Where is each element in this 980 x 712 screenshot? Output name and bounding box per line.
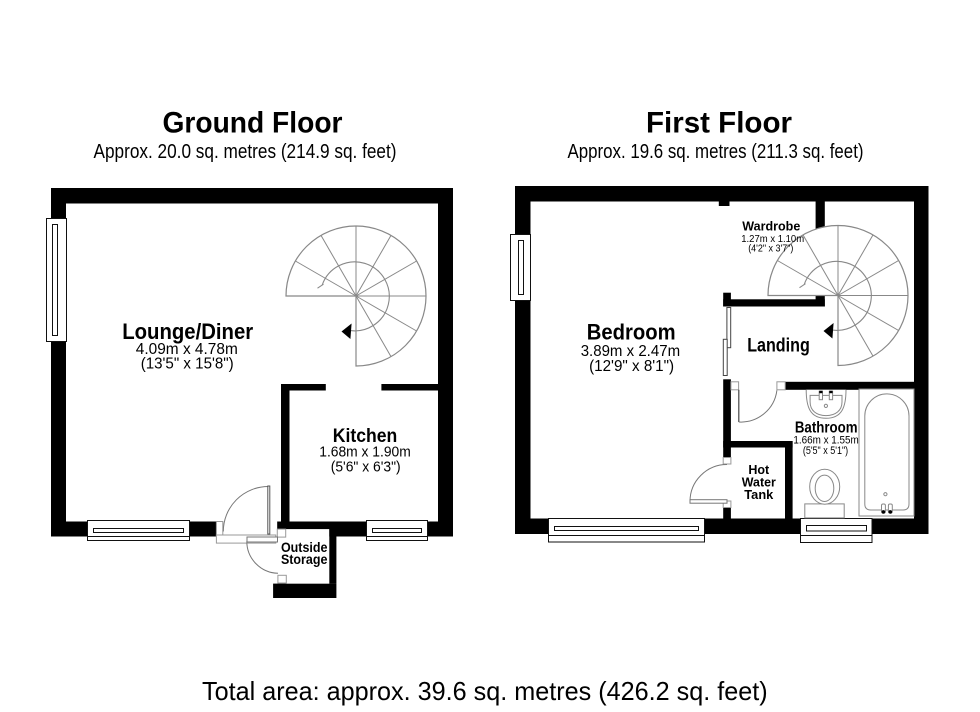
svg-text:Tank: Tank bbox=[744, 488, 773, 502]
svg-text:(5'6" x 6'3"): (5'6" x 6'3") bbox=[331, 460, 401, 476]
svg-text:(4'2" x 3'7"): (4'2" x 3'7") bbox=[748, 243, 793, 254]
svg-text:(5'5" x 5'1"): (5'5" x 5'1") bbox=[803, 445, 848, 457]
svg-text:Approx. 19.6 sq. metres (211.3: Approx. 19.6 sq. metres (211.3 sq. feet) bbox=[568, 141, 864, 163]
svg-text:Storage: Storage bbox=[281, 551, 328, 567]
svg-text:Wardrobe: Wardrobe bbox=[742, 218, 800, 233]
svg-text:(12'9" x 8'1"): (12'9" x 8'1") bbox=[589, 358, 674, 375]
svg-text:Total area: approx. 39.6 sq. m: Total area: approx. 39.6 sq. metres (426… bbox=[202, 676, 768, 706]
svg-text:Approx. 20.0 sq. metres (214.9: Approx. 20.0 sq. metres (214.9 sq. feet) bbox=[94, 141, 397, 163]
svg-text:First Floor: First Floor bbox=[646, 107, 792, 140]
svg-text:Bedroom: Bedroom bbox=[587, 320, 676, 345]
svg-text:1.68m x 1.90m: 1.68m x 1.90m bbox=[319, 445, 411, 461]
svg-text:(13'5" x 15'8"): (13'5" x 15'8") bbox=[141, 355, 234, 372]
svg-text:Ground Floor: Ground Floor bbox=[163, 107, 343, 140]
svg-text:Landing: Landing bbox=[747, 335, 810, 356]
